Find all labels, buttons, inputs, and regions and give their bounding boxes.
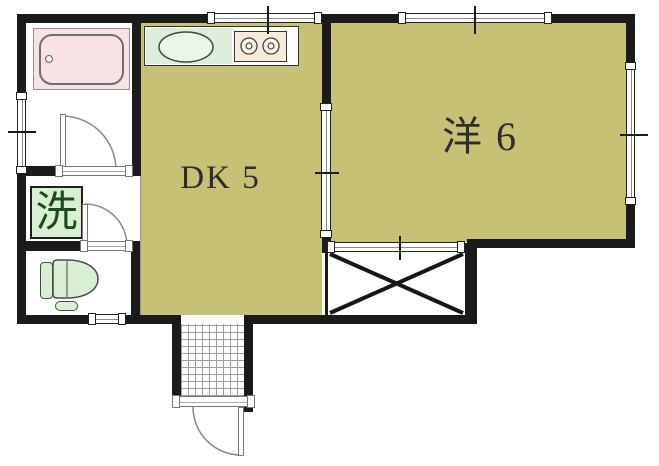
partition-window-tick [315, 172, 339, 174]
sill-cap [55, 165, 63, 177]
wall-western-bottom [467, 239, 635, 248]
wall-porch-left [172, 315, 181, 401]
wall-wc-right [131, 241, 140, 324]
sill-cap [247, 395, 255, 408]
kitchen-window [207, 13, 322, 23]
sill-cap [172, 395, 180, 408]
wall-top-left [17, 14, 207, 23]
closet-window-tick [399, 236, 401, 260]
wall-bottom-left [17, 315, 88, 324]
wall-top-middle [322, 14, 398, 23]
toilet-icon [53, 260, 98, 298]
bathroom-door-leaf [60, 114, 66, 170]
sill-cap [125, 240, 133, 252]
window-cap [16, 92, 27, 100]
right-window-tick [620, 134, 648, 136]
wall-bath-right [132, 14, 141, 176]
sill-cap [125, 165, 133, 177]
wall-dk-bottom-right [244, 315, 332, 324]
western-room-label: 洋 6 [405, 104, 555, 162]
window-cap [457, 241, 465, 253]
window-cap [314, 12, 322, 24]
wall-closet-left [325, 252, 328, 315]
kitchen-sink-icon [159, 32, 213, 62]
window-cap [625, 62, 636, 70]
wall-left-upper [17, 14, 26, 92]
window-cap [16, 166, 27, 174]
stove-burner-right-dot [268, 43, 274, 49]
bathroom-left-window [17, 92, 26, 174]
dining-kitchen-label: DK 5 [148, 160, 293, 197]
toilet-door-arc [85, 204, 127, 246]
dk-western-partition-window [321, 103, 331, 238]
toilet-door-sill [80, 241, 133, 251]
left-window-tick [8, 131, 36, 133]
window-cap [320, 230, 332, 238]
window-cap [398, 12, 406, 24]
window-cap [327, 241, 335, 253]
kitchen-window-tick [267, 6, 269, 34]
window-cap [625, 197, 636, 205]
window-cap [320, 103, 332, 111]
wall-right-upper [626, 14, 635, 62]
window-cap [88, 313, 96, 325]
wall-partition-upper [322, 23, 331, 105]
wall-closet-right [465, 243, 477, 324]
wall-wc-top [17, 241, 80, 251]
entrance-door-arc [193, 407, 241, 455]
window-cap [118, 313, 126, 325]
bathroom-door-arc [62, 116, 116, 170]
wall-closet-bottom [325, 315, 477, 324]
western-top-window-tick [474, 6, 476, 34]
toilet-window [88, 314, 126, 324]
closet-sliding-window [327, 242, 465, 252]
entrance-door-leaf [238, 407, 244, 456]
bathroom-door-sill [55, 166, 133, 176]
floor-plan: 洗 [0, 0, 659, 466]
wall-top-right [552, 14, 635, 23]
window-cap [544, 12, 552, 24]
entrance-door-sill [172, 396, 255, 407]
stove-burner-left-dot [246, 43, 252, 49]
sill-cap [80, 240, 88, 252]
window-cap [207, 12, 215, 24]
bathtub-drain-icon [46, 56, 53, 63]
